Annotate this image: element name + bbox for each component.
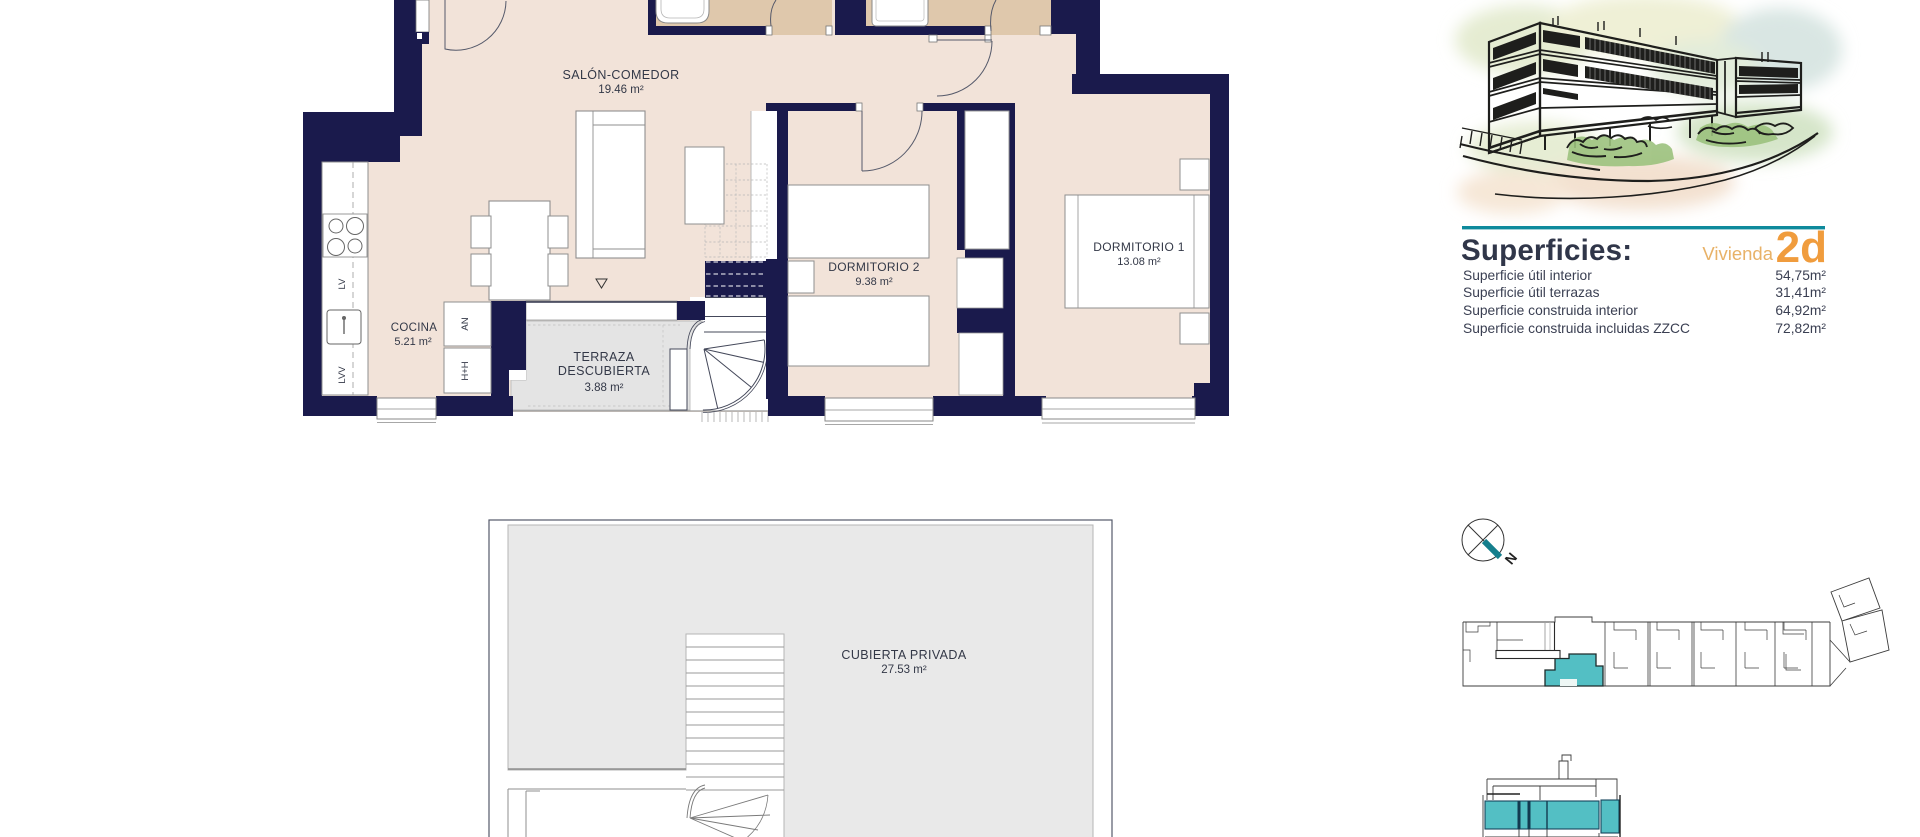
- svg-text:Superficie útil terrazas: Superficie útil terrazas: [1463, 285, 1600, 300]
- svg-text:64,92m²: 64,92m²: [1775, 303, 1826, 318]
- svg-text:Superficies:: Superficies:: [1461, 234, 1632, 267]
- svg-text:TERRAZA: TERRAZA: [573, 350, 634, 364]
- svg-text:3.88 m²: 3.88 m²: [585, 382, 624, 394]
- svg-text:CUBIERTA PRIVADA: CUBIERTA PRIVADA: [841, 648, 966, 662]
- svg-text:LVV: LVV: [337, 366, 348, 384]
- svg-text:54,75m²: 54,75m²: [1775, 268, 1826, 283]
- svg-text:31,41m²: 31,41m²: [1775, 285, 1826, 300]
- svg-text:Vivienda: Vivienda: [1702, 243, 1773, 264]
- svg-text:72,82m²: 72,82m²: [1775, 321, 1826, 336]
- svg-text:DORMITORIO 2: DORMITORIO 2: [828, 260, 919, 274]
- svg-text:DORMITORIO 1: DORMITORIO 1: [1093, 240, 1184, 254]
- svg-text:N: N: [1501, 549, 1520, 567]
- svg-text:19.46 m²: 19.46 m²: [598, 84, 644, 96]
- svg-text:H+H: H+H: [460, 361, 471, 380]
- svg-text:SALÓN-COMEDOR: SALÓN-COMEDOR: [562, 67, 679, 82]
- svg-text:5.21 m²: 5.21 m²: [394, 336, 432, 348]
- svg-text:Superficie útil interior: Superficie útil interior: [1463, 268, 1592, 283]
- svg-text:COCINA: COCINA: [391, 322, 438, 334]
- svg-text:13.08 m²: 13.08 m²: [1117, 256, 1161, 268]
- svg-text:Superficie construida incluida: Superficie construida incluidas ZZCC: [1463, 321, 1690, 336]
- svg-text:27.53 m²: 27.53 m²: [881, 664, 927, 676]
- svg-text:9.38 m²: 9.38 m²: [855, 276, 893, 288]
- svg-text:2d: 2d: [1776, 223, 1827, 272]
- svg-text:Superficie construida interior: Superficie construida interior: [1463, 303, 1638, 318]
- svg-text:DESCUBIERTA: DESCUBIERTA: [558, 364, 650, 378]
- svg-text:AN: AN: [460, 317, 471, 330]
- svg-text:LV: LV: [337, 278, 348, 290]
